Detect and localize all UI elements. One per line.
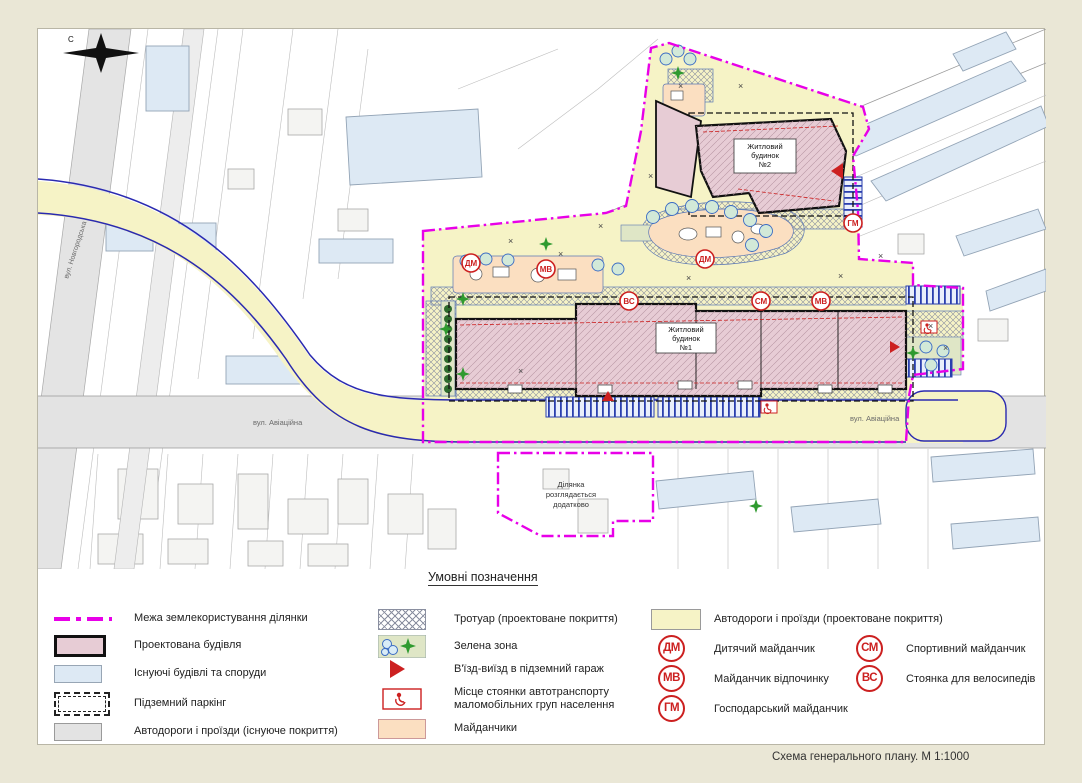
svg-text:додатково: додатково — [553, 500, 589, 509]
legend-label: Тротуар (проектоване покриття) — [454, 613, 618, 625]
svg-text:×: × — [598, 221, 603, 231]
svg-text:С: С — [68, 35, 74, 44]
legend-label: Межа землекористування ділянки — [134, 612, 308, 624]
sheet-caption: Схема генерального плану. М 1:1000 — [772, 751, 969, 763]
legend-badge-vs: ВС — [856, 665, 883, 692]
drawing-sheet: Житловий будинок №1 Житловий будинок №2 — [37, 28, 1045, 745]
street-label-aviatsiina-right: вул. Авіаційна — [850, 414, 900, 423]
svg-text:ВС: ВС — [623, 297, 634, 306]
svg-text:ГМ: ГМ — [847, 219, 859, 228]
legend-existing-building-swatch — [54, 665, 102, 683]
legend-existing-road-swatch — [54, 723, 102, 741]
legend-label: Існуючі будівлі та споруди — [134, 667, 266, 679]
svg-text:×: × — [686, 273, 691, 283]
svg-text:×: × — [943, 343, 948, 353]
svg-text:СМ: СМ — [755, 297, 768, 306]
legend-garage-entrance-icon — [390, 660, 405, 678]
legend-label: Дитячий майданчик — [714, 643, 815, 655]
legend-badge-sm: СМ — [856, 635, 883, 662]
legend-label: Підземний паркінг — [134, 697, 226, 709]
svg-text:×: × — [648, 171, 653, 181]
svg-text:×: × — [738, 81, 743, 91]
legend-label: Майданчики — [454, 722, 517, 734]
legend-label: Автодороги і проїзди (існуюче покриття) — [134, 725, 338, 737]
legend-boundary-swatch — [52, 612, 114, 626]
legend-label: Проектована будівля — [134, 639, 241, 651]
svg-text:№1: №1 — [680, 343, 692, 352]
legend-label: Майданчик відпочинку — [714, 673, 829, 685]
svg-text:МВ: МВ — [540, 265, 553, 274]
legend-projected-building-swatch — [54, 635, 106, 657]
svg-text:МВ: МВ — [815, 297, 828, 306]
legend-badge-dm: ДМ — [658, 635, 685, 662]
svg-text:ДМ: ДМ — [465, 259, 478, 268]
svg-text:×: × — [518, 366, 523, 376]
legend-title: Умовні позначення — [428, 570, 538, 586]
svg-text:будинок: будинок — [751, 151, 780, 160]
page: { "window": { "caption": "Схема генераль… — [0, 0, 1082, 783]
legend-badge-mv: МВ — [658, 665, 685, 692]
svg-text:×: × — [928, 321, 933, 331]
legend-projected-road-swatch — [651, 609, 701, 630]
svg-text:Ділянка: Ділянка — [558, 480, 586, 489]
legend-underground-parking-swatch — [54, 692, 110, 716]
svg-text:×: × — [838, 271, 843, 281]
svg-text:×: × — [508, 236, 513, 246]
svg-text:×: × — [678, 81, 683, 91]
legend-accessible-parking-icon — [382, 688, 422, 710]
street-label-aviatsiina-left: вул. Авіаційна — [253, 418, 303, 427]
svg-text:№2: №2 — [759, 160, 771, 169]
legend-label: Місце стоянки автотранспорту маломобільн… — [454, 686, 614, 712]
legend-green-zone-swatch — [378, 635, 426, 658]
svg-text:ДМ: ДМ — [699, 255, 712, 264]
legend-label: Зелена зона — [454, 640, 517, 652]
legend-label: Спортивний майданчик — [906, 643, 1025, 655]
legend-label: Господарський майданчик — [714, 703, 848, 715]
svg-text:×: × — [878, 251, 883, 261]
legend-badge-gm: ГМ — [658, 695, 685, 722]
svg-text:×: × — [558, 249, 563, 259]
svg-text:будинок: будинок — [672, 334, 701, 343]
legend-label: Стоянка для велосипедів — [906, 673, 1035, 685]
building2-label: Житловий — [747, 142, 782, 151]
site-plan-svg: Житловий будинок №1 Житловий будинок №2 — [38, 29, 1046, 569]
legend-sidewalk-swatch — [378, 609, 426, 630]
svg-text:розглядається: розглядається — [546, 490, 596, 499]
legend-label: В'їзд-виїзд в підземний гараж — [454, 663, 604, 675]
legend-playground-swatch — [378, 719, 426, 739]
building1-label: Житловий — [668, 325, 703, 334]
legend-label: Автодороги і проїзди (проектоване покрит… — [714, 613, 943, 625]
